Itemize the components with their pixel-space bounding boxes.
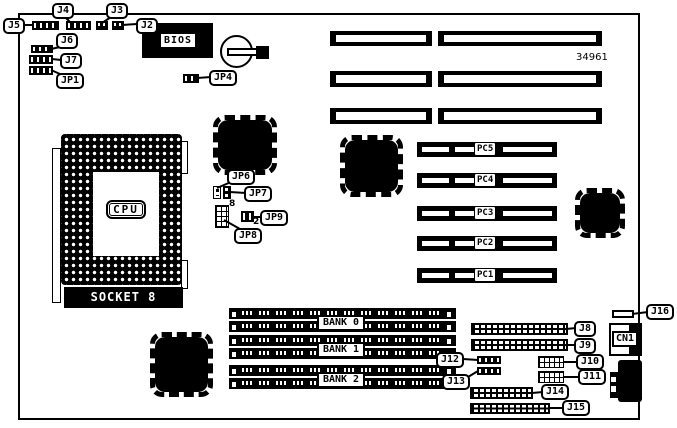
j15-header [470,403,550,414]
keyboard-din-connector [618,360,642,402]
label-j10: J10 [576,354,604,370]
isa-slot-1-left [330,31,432,46]
socket-tab-top [181,141,188,174]
label-jp8: JP8 [234,228,262,244]
bios-label: BIOS [161,34,195,47]
j10-header [538,356,564,368]
pci-label: PC5 [474,142,496,156]
j6-header [31,45,53,53]
qfp-chip-1 [218,120,272,170]
pci-label: PC3 [474,206,496,220]
qfp-chip-3 [580,193,620,233]
label-jp4: JP4 [209,70,237,86]
isa-slot-2-right [438,71,602,87]
slot-keyway [503,211,552,216]
label-j6: J6 [56,33,78,49]
label-j7: J7 [60,53,82,69]
slot-keyway [455,178,474,183]
qfp-chip-2 [345,140,398,192]
jp1-header [29,66,53,75]
pci-label: PC1 [474,268,496,282]
cpu-label: CPU [106,200,146,219]
j8-header [471,323,568,335]
j7-header [29,55,53,64]
din-pin-window-2 [611,386,616,392]
j3-connector [96,21,108,30]
socket8-label: SOCKET 8 [64,287,183,308]
label-jp6: JP6 [227,169,255,185]
label-jp7: JP7 [244,186,272,202]
label-jp1: JP1 [56,73,84,89]
j12-header [477,356,501,364]
label-j12: J12 [436,352,464,368]
slot-keyway [503,273,552,278]
slot-keyway [422,273,449,278]
isa-slot-3-left [330,108,432,124]
isa-slot-2-left [330,71,432,87]
jp6-connector [213,186,221,199]
pci-slot-pc4: PC4 [417,173,557,188]
label-j3: J3 [106,3,128,19]
battery-slot [227,48,259,56]
slot-keyway [455,273,474,278]
label-j4: J4 [52,3,74,19]
j16-slot [612,310,634,318]
jp8-pin-count: 8 [229,200,235,209]
qfp-chip-4 [155,337,208,392]
label-jp9: JP9 [260,210,288,226]
cpu-socket: CPU [61,134,182,285]
socket-lever [52,148,61,303]
jp8-header [215,205,229,228]
label-j13: J13 [442,374,470,390]
slot-keyway [455,211,474,216]
pci-slot-pc2: PC2 [417,236,557,251]
j14-header [470,387,533,399]
label-j9: J9 [574,338,596,354]
label-j2: J2 [136,18,158,34]
socket-tab-bottom [181,260,188,289]
slot-keyway [455,147,474,152]
slot-keyway [503,147,552,152]
isa-slot-1-right [438,31,602,46]
slot-keyway [503,241,552,246]
label-j16: J16 [646,304,674,320]
slot-keyway [455,241,474,246]
cn1-label: CN1 [612,331,638,347]
pci-slot-pc5: PC5 [417,142,557,157]
label-j11: J11 [578,369,606,385]
bank2-label: BANK 2 [317,372,365,388]
slot-keyway [503,178,552,183]
part-number: 34961 [576,53,608,63]
bank1-label: BANK 1 [317,342,365,358]
j9-header [471,339,568,351]
slot-keyway [422,211,449,216]
isa-slot-3-right [438,108,602,124]
din-pin-window-1 [611,377,616,382]
j2-connector [112,21,124,30]
label-j15: J15 [562,400,590,416]
label-j5: J5 [3,18,25,34]
j4-header [66,21,91,30]
din-connector-tab [610,372,620,398]
motherboard-diagram: J5 J4 J3 J2 J6 J7 JP1 BIOS JP4 34961 PC5… [0,0,677,428]
jp9-pin-count: 2 [253,218,259,227]
slot-keyway [422,241,449,246]
j5-header [32,21,59,30]
battery-clip [256,46,269,59]
slot-keyway [422,178,449,183]
slot-keyway [422,147,449,152]
j13-header [477,367,501,375]
jp7-connector [223,186,231,199]
pci-slot-pc1: PC1 [417,268,557,283]
pci-slot-pc3: PC3 [417,206,557,221]
pci-label: PC2 [474,236,496,250]
bank0-label: BANK 0 [317,315,365,331]
jp4-header [183,74,199,83]
pci-label: PC4 [474,173,496,187]
label-j14: J14 [541,384,569,400]
label-j8: J8 [574,321,596,337]
j11-header [538,371,564,383]
